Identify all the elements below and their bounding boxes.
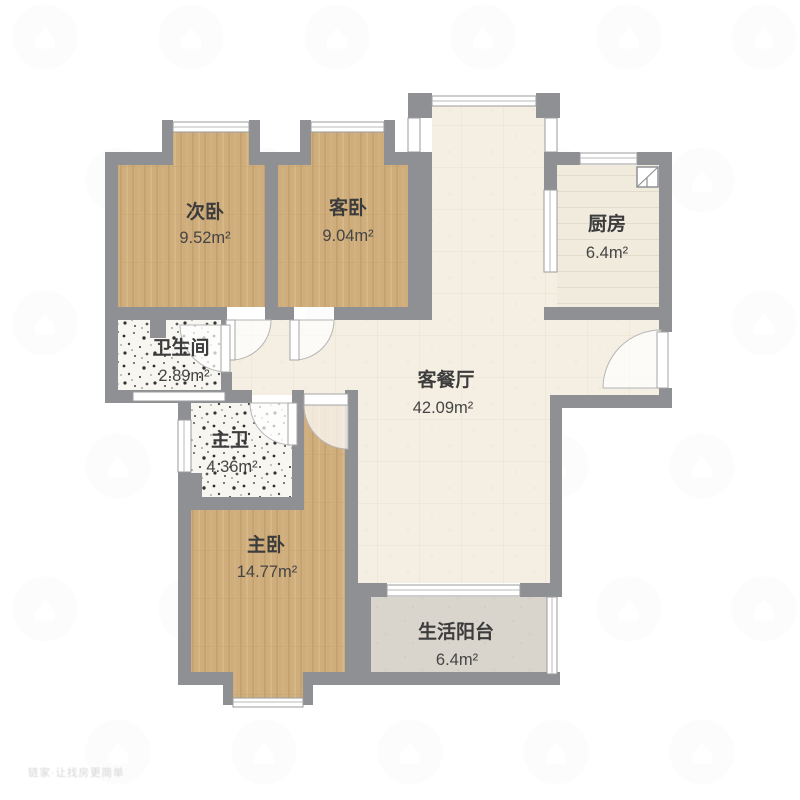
- room-name-bathroom: 卫生间: [152, 336, 209, 359]
- window-living-right: [545, 118, 557, 152]
- room-area-master-bath: 4.36m²: [206, 458, 258, 476]
- room-name-master-bedroom: 主卧: [247, 534, 285, 556]
- watermark-text: 链家·让找房更简单: [28, 766, 125, 779]
- floorplan-svg: 次卧 9.52m² 客卧 9.04m² 厨房 6.4m² 卫生间 2.89m² …: [0, 0, 800, 800]
- room-floor-living-dining: [432, 106, 550, 583]
- room-name-living-dining: 客餐厅: [417, 368, 474, 391]
- floorplan-canvas: 次卧 9.52m² 客卧 9.04m² 厨房 6.4m² 卫生间 2.89m² …: [0, 0, 800, 800]
- room-area-kitchen: 6.4m²: [586, 244, 629, 262]
- window-bathroom-bottom: [133, 392, 225, 401]
- room-area-guest-bedroom: 9.04m²: [322, 227, 374, 245]
- room-area-master-bedroom: 14.77m²: [237, 563, 298, 581]
- room-area-living-dining: 42.09m²: [413, 399, 474, 417]
- kitchen-doorway-floor: [544, 272, 557, 307]
- room-name-master-bath: 主卫: [211, 429, 249, 451]
- room-name-guest-bedroom: 客卧: [329, 196, 367, 219]
- flue-icon: [637, 167, 658, 187]
- room-area-secondary-bedroom: 9.52m²: [179, 229, 231, 247]
- window-living-left: [408, 118, 420, 152]
- room-area-living-balcony: 6.4m²: [436, 651, 479, 669]
- room-floor-corridor: [358, 395, 432, 583]
- room-name-kitchen: 厨房: [588, 212, 626, 235]
- room-area-bathroom: 2.89m²: [158, 367, 210, 385]
- room-name-secondary-bedroom: 次卧: [186, 200, 224, 223]
- room-name-living-balcony: 生活阳台: [418, 620, 494, 643]
